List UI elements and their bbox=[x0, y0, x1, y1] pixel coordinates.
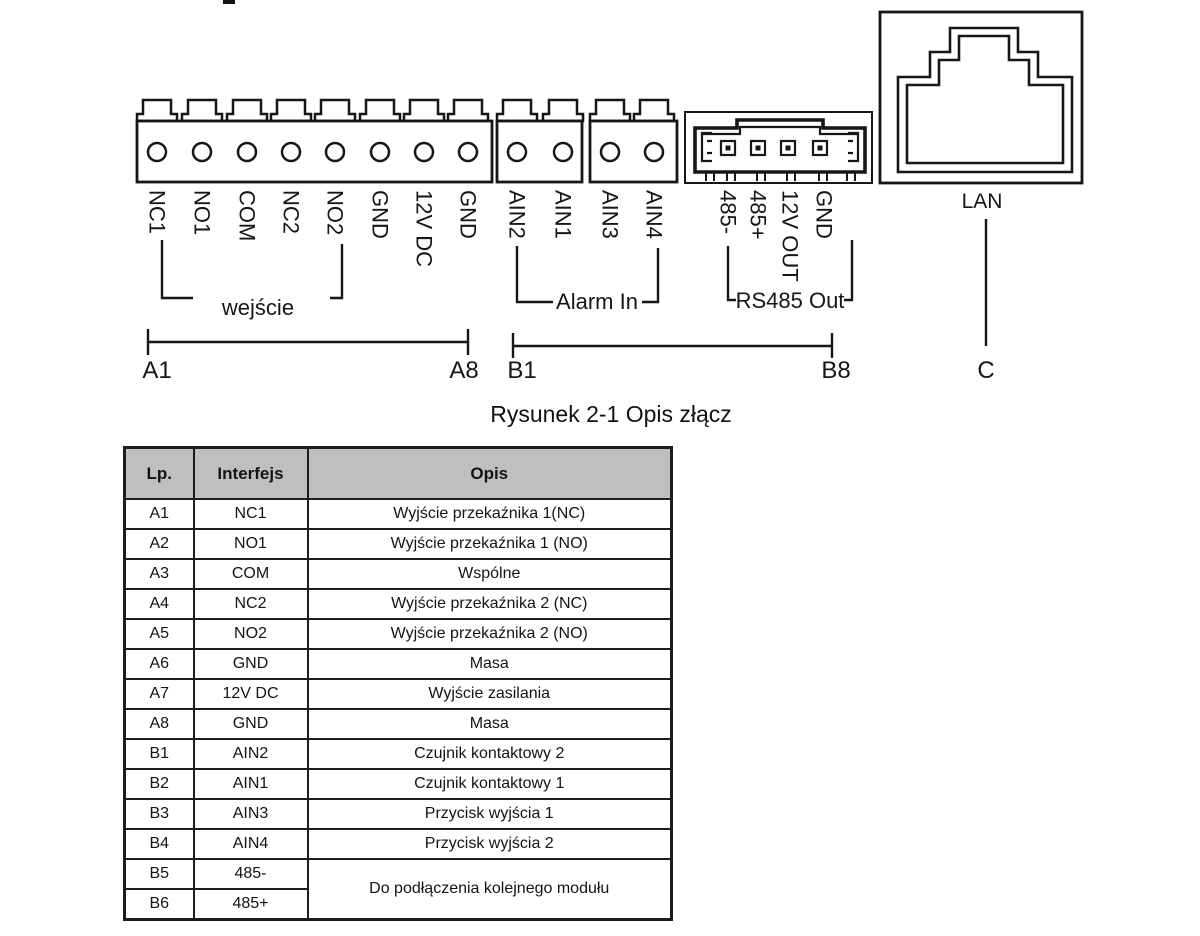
table-row-b4: B4 AIN4 Przycisk wyjścia 2 bbox=[125, 829, 672, 859]
pin-label-ain4: AIN4 bbox=[642, 190, 667, 239]
cell-opis: Wyjście przekaźnika 1(NC) bbox=[308, 499, 672, 529]
cell-lp: A3 bbox=[125, 559, 194, 589]
cell-opis-merged: Do podłączenia kolejnego modułu bbox=[308, 859, 672, 920]
cell-interfejs: AIN1 bbox=[194, 769, 308, 799]
table-row-a7: A7 12V DC Wyjście zasilania bbox=[125, 679, 672, 709]
cell-interfejs: NC1 bbox=[194, 499, 308, 529]
cell-lp: A8 bbox=[125, 709, 194, 739]
col-header-interfejs: Interfejs bbox=[194, 448, 308, 500]
cell-opis: Przycisk wyjścia 2 bbox=[308, 829, 672, 859]
cell-lp: B4 bbox=[125, 829, 194, 859]
pin-label-ain2: AIN2 bbox=[505, 190, 530, 239]
pin-label-gnd-a6: GND bbox=[368, 190, 393, 239]
range-b-end-label: B8 bbox=[821, 357, 850, 384]
cell-interfejs: GND bbox=[194, 649, 308, 679]
pin-label-ain3: AIN3 bbox=[598, 190, 623, 239]
rs485-bracket-right bbox=[844, 240, 852, 300]
connector-diagram: NC1 NO1 COM NC2 NO2 GND 12V DC GND AIN2 … bbox=[0, 0, 1200, 440]
table-row-a4: A4 NC2 Wyjście przekaźnika 2 (NC) bbox=[125, 589, 672, 619]
cell-lp: B6 bbox=[125, 889, 194, 920]
cell-lp: A2 bbox=[125, 529, 194, 559]
table-row-a3: A3 COM Wspólne bbox=[125, 559, 672, 589]
table-header-row: Lp. Interfejs Opis bbox=[125, 448, 672, 500]
range-b-start-label: B1 bbox=[507, 357, 536, 384]
range-b-line bbox=[513, 333, 832, 358]
group-brackets: wejście Alarm In RS485 Out bbox=[162, 240, 852, 320]
pin-label-12vdc: 12V DC bbox=[412, 190, 437, 267]
pin-label-gnd-a8: GND bbox=[456, 190, 481, 239]
cell-interfejs: GND bbox=[194, 709, 308, 739]
cell-lp: A4 bbox=[125, 589, 194, 619]
manual-page: NC1 NO1 COM NC2 NO2 GND 12V DC GND AIN2 … bbox=[0, 0, 1200, 936]
pin-label-12vout: 12V OUT bbox=[778, 190, 803, 282]
table-row-a2: A2 NO1 Wyjście przekaźnika 1 (NO) bbox=[125, 529, 672, 559]
table-row-b2: B2 AIN1 Czujnik kontaktowy 1 bbox=[125, 769, 672, 799]
figure-caption: Rysunek 2-1 Opis złącz bbox=[0, 401, 1200, 428]
cell-lp: A5 bbox=[125, 619, 194, 649]
table-row-a1: A1 NC1 Wyjście przekaźnika 1(NC) bbox=[125, 499, 672, 529]
cell-interfejs: NO2 bbox=[194, 619, 308, 649]
pin-label-nc2: NC2 bbox=[279, 190, 304, 234]
cell-lp: B3 bbox=[125, 799, 194, 829]
pin-label-no1: NO1 bbox=[190, 190, 215, 235]
cell-opis: Przycisk wyjścia 1 bbox=[308, 799, 672, 829]
lan-range-label: C bbox=[977, 357, 994, 384]
alarm-bracket-left bbox=[517, 246, 553, 302]
cell-lp: A6 bbox=[125, 649, 194, 679]
rs485-connector bbox=[685, 112, 872, 183]
rj45-jack bbox=[880, 12, 1082, 183]
cell-lp: B2 bbox=[125, 769, 194, 799]
table-row-b3: B3 AIN3 Przycisk wyjścia 1 bbox=[125, 799, 672, 829]
cell-lp: B1 bbox=[125, 739, 194, 769]
cell-opis: Wyjście przekaźnika 1 (NO) bbox=[308, 529, 672, 559]
cell-opis: Masa bbox=[308, 709, 672, 739]
cell-opis: Wyjście przekaźnika 2 (NO) bbox=[308, 619, 672, 649]
cell-opis: Czujnik kontaktowy 1 bbox=[308, 769, 672, 799]
col-header-opis: Opis bbox=[308, 448, 672, 500]
cell-lp: B5 bbox=[125, 859, 194, 889]
cell-interfejs: COM bbox=[194, 559, 308, 589]
table-row-b5: B5 485- Do podłączenia kolejnego modułu bbox=[125, 859, 672, 889]
wejscie-bracket-left bbox=[162, 240, 193, 298]
range-a-start-label: A1 bbox=[142, 357, 171, 384]
cell-interfejs: NO1 bbox=[194, 529, 308, 559]
cell-interfejs: 485- bbox=[194, 859, 308, 889]
col-header-lp: Lp. bbox=[125, 448, 194, 500]
range-a-end-label: A8 bbox=[449, 357, 478, 384]
wejscie-label: wejście bbox=[221, 295, 294, 320]
pin-label-no2: NO2 bbox=[323, 190, 348, 235]
table-row-a6: A6 GND Masa bbox=[125, 649, 672, 679]
cell-interfejs: 12V DC bbox=[194, 679, 308, 709]
alarm-bracket-right bbox=[642, 248, 658, 302]
pin-label-ain1: AIN1 bbox=[551, 190, 576, 239]
wejscie-bracket-right bbox=[330, 244, 342, 298]
cell-interfejs: AIN4 bbox=[194, 829, 308, 859]
cell-opis: Wyjście zasilania bbox=[308, 679, 672, 709]
table-row-a5: A5 NO2 Wyjście przekaźnika 2 (NO) bbox=[125, 619, 672, 649]
alarm-in-label: Alarm In bbox=[556, 289, 638, 314]
cropped-artifact bbox=[223, 0, 235, 4]
cell-opis: Wyjście przekaźnika 2 (NC) bbox=[308, 589, 672, 619]
pin-label-485minus: 485- bbox=[716, 190, 741, 234]
cell-opis: Wspólne bbox=[308, 559, 672, 589]
cell-lp: A1 bbox=[125, 499, 194, 529]
pin-label-com: COM bbox=[235, 190, 260, 241]
table-row-a8: A8 GND Masa bbox=[125, 709, 672, 739]
terminal-blocks-alarm bbox=[497, 100, 677, 182]
terminal-block-a bbox=[137, 100, 492, 182]
cell-interfejs: AIN3 bbox=[194, 799, 308, 829]
cell-opis: Czujnik kontaktowy 2 bbox=[308, 739, 672, 769]
lan-label: LAN bbox=[962, 190, 1003, 213]
cell-interfejs: AIN2 bbox=[194, 739, 308, 769]
block-a-body bbox=[137, 121, 492, 182]
rs485-out-label: RS485 Out bbox=[736, 288, 845, 313]
table-row-b1: B1 AIN2 Czujnik kontaktowy 2 bbox=[125, 739, 672, 769]
pin-label-gnd-rs485: GND bbox=[812, 190, 837, 239]
pin-label-nc1: NC1 bbox=[145, 190, 170, 234]
cell-interfejs: NC2 bbox=[194, 589, 308, 619]
pin-labels: NC1 NO1 COM NC2 NO2 GND 12V DC GND AIN2 … bbox=[145, 190, 837, 282]
pin-label-485plus: 485+ bbox=[746, 190, 771, 240]
cell-lp: A7 bbox=[125, 679, 194, 709]
connector-description-table: Lp. Interfejs Opis A1 NC1 Wyjście przeka… bbox=[123, 446, 673, 921]
cell-interfejs: 485+ bbox=[194, 889, 308, 920]
cell-opis: Masa bbox=[308, 649, 672, 679]
range-a-line bbox=[148, 329, 468, 355]
